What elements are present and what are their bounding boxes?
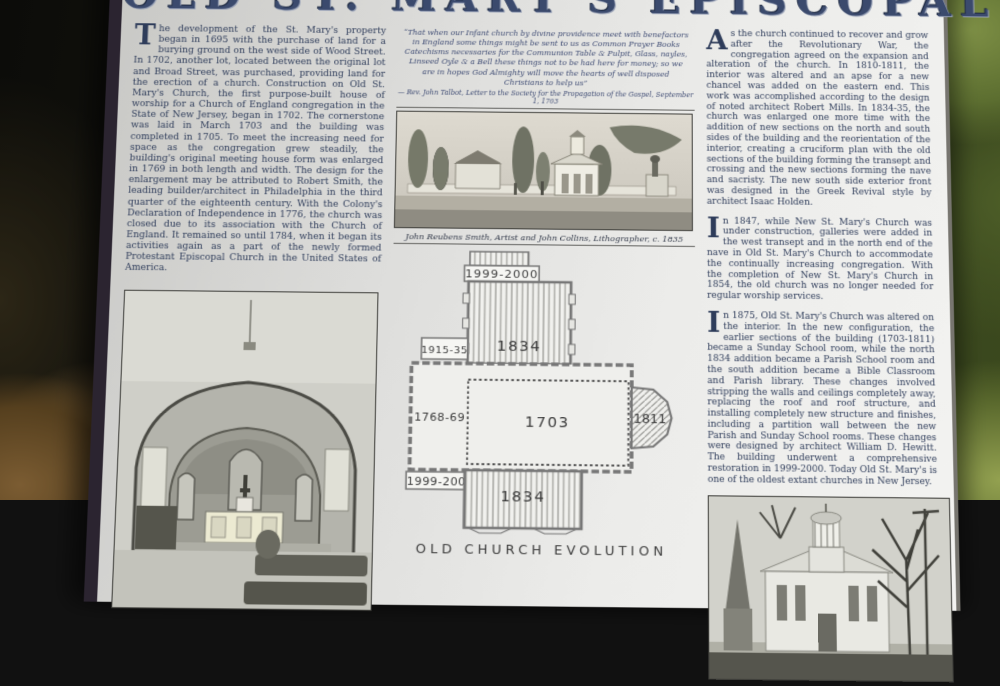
lithograph-caption: John Reubens Smith, Artist and John Coll… xyxy=(394,231,695,244)
quote-attribution: — Rev. John Talbot, Letter to the Societ… xyxy=(396,88,694,107)
plan-label-north-porch: 1999-2000 xyxy=(465,268,539,281)
plan-label-south-transept: 1834 xyxy=(500,489,545,506)
paragraph-expansion-1810s: As the church continued to recover and g… xyxy=(706,29,932,209)
plan-label-west-annex: 1915-35 xyxy=(421,345,467,356)
history-paragraph-1695: The development of the St. Mary's proper… xyxy=(125,23,386,276)
lithograph-image xyxy=(394,111,693,232)
paragraph-1847-galleries: In 1847, while New St. Mary's Church was… xyxy=(707,216,934,304)
founders-quote: “That when our Infant church by divine p… xyxy=(403,28,689,90)
paragraph-1875-alterations: In 1875, Old St. Mary's Church was alter… xyxy=(707,311,937,488)
center-column: “That when our Infant church by divine p… xyxy=(387,26,696,560)
right-column: As the church continued to recover and g… xyxy=(706,29,941,682)
plan-caption: OLD CHURCH EVOLUTION xyxy=(387,541,696,560)
plan-label-north-transept: 1834 xyxy=(497,339,542,355)
left-column: The development of the St. Mary's proper… xyxy=(111,23,386,610)
plan-label-east-apse: 1811 xyxy=(633,412,666,426)
exterior-photo xyxy=(708,495,954,682)
interior-photo xyxy=(111,289,378,610)
sign-panel: OLD ST. MARY'S EPISCOPAL CHURCH The deve… xyxy=(84,0,961,611)
floorplan-diagram: 1999-2000 1834 1915-35 1768 xyxy=(387,248,696,560)
plan-label-original-church: 1703 xyxy=(525,415,570,431)
plan-label-west-extension: 1768-69 xyxy=(414,411,465,424)
sign-columns: The development of the St. Mary's proper… xyxy=(94,17,958,682)
